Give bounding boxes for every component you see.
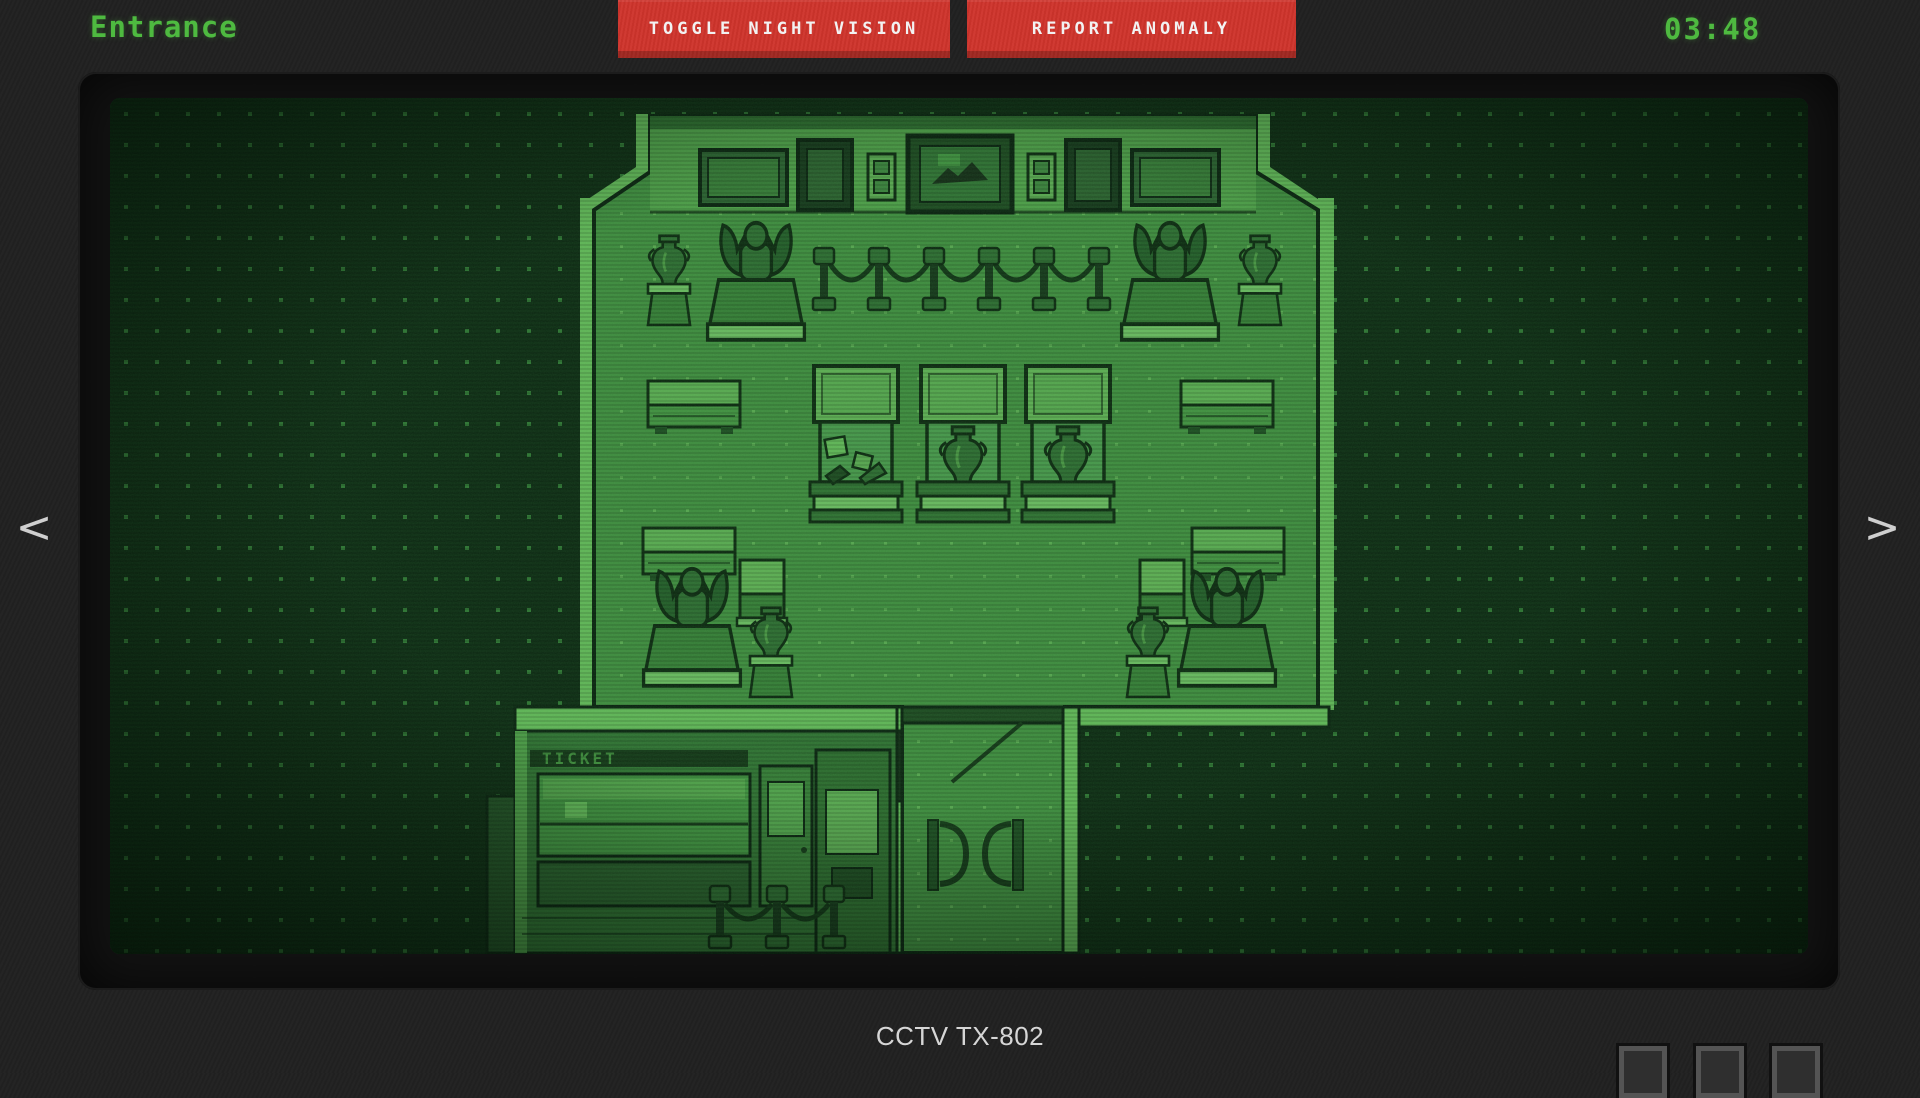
prev-camera-button[interactable]: < (8, 497, 60, 561)
toggle-night-vision-button[interactable]: TOGGLE NIGHT VISION (618, 0, 950, 58)
museum-scene-art: TICKET (110, 98, 1808, 954)
report-anomaly-button[interactable]: REPORT ANOMALY (967, 0, 1296, 58)
monitor-bezel-button-1 (1619, 1046, 1667, 1098)
vignette-overlay (110, 98, 1808, 954)
clock: 03:48 (1664, 12, 1761, 46)
camera-title: Entrance (90, 10, 238, 44)
cctv-scene: TICKET (110, 98, 1808, 954)
cctv-game-screen: { "header": { "camera_name": "Entrance",… (0, 0, 1920, 1073)
monitor-bezel-button-2 (1696, 1046, 1744, 1098)
monitor-frame: TICKET (78, 72, 1840, 990)
next-camera-button[interactable]: > (1856, 497, 1908, 561)
monitor-bezel-button-3 (1772, 1046, 1820, 1098)
